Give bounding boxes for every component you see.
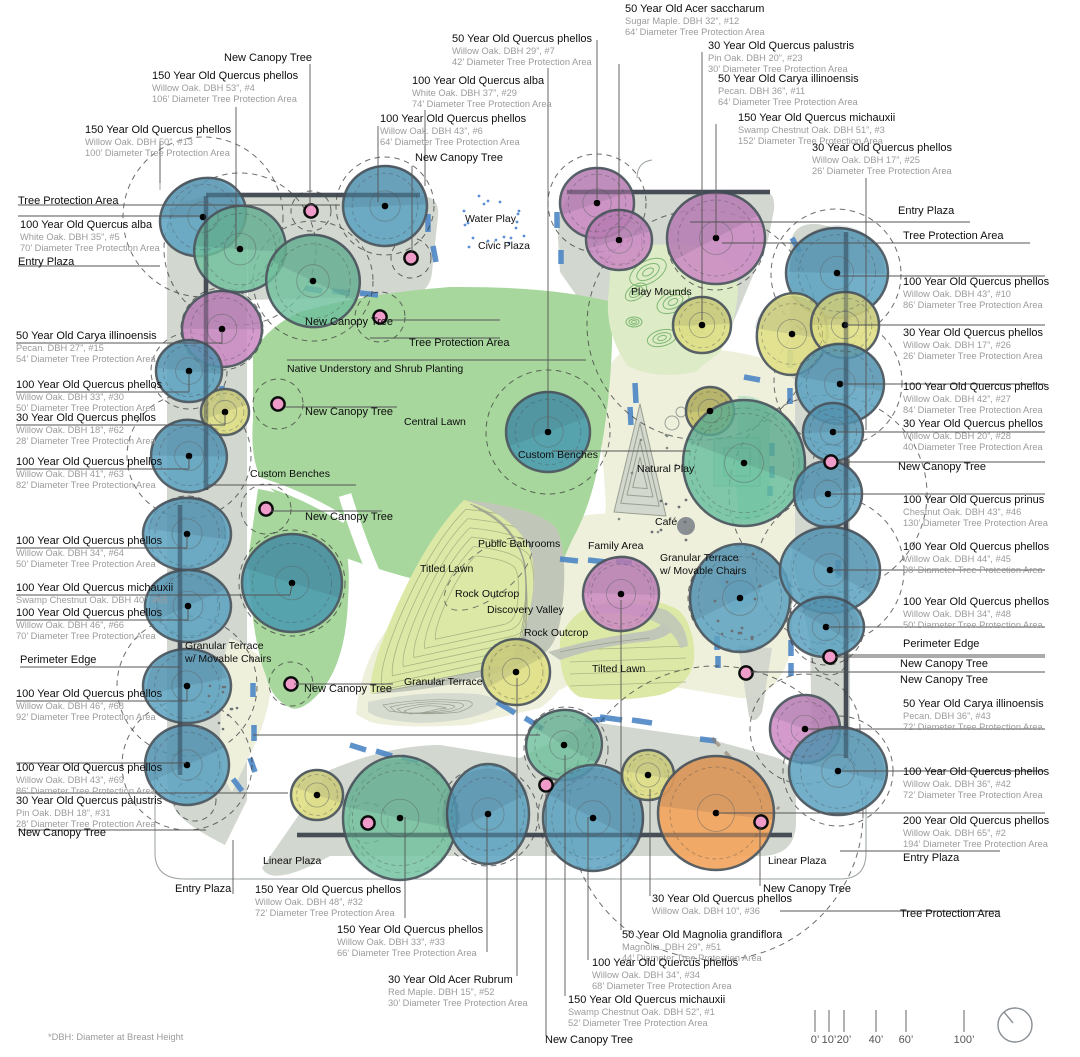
svg-text:w/ Movable Chairs: w/ Movable Chairs	[659, 565, 746, 577]
svg-text:40’ Diameter Tree Protection A: 40’ Diameter Tree Protection Area	[903, 442, 1044, 452]
svg-text:100 Year Old Quercus phellos: 100 Year Old Quercus phellos	[16, 379, 163, 391]
svg-text:Willow Oak. DBH 29”, #7: Willow Oak. DBH 29”, #7	[452, 46, 555, 56]
svg-text:150 Year Old Quercus phellos: 150 Year Old Quercus phellos	[152, 70, 299, 82]
svg-text:Water Play: Water Play	[465, 213, 517, 225]
svg-text:Willow Oak. DBH 53”, #4: Willow Oak. DBH 53”, #4	[152, 83, 255, 93]
svg-text:50 Year Old Carya illinoensis: 50 Year Old Carya illinoensis	[16, 330, 157, 342]
svg-text:70’ Diameter Tree Protection A: 70’ Diameter Tree Protection Area	[20, 243, 161, 253]
svg-text:50 Year Old Quercus phellos: 50 Year Old Quercus phellos	[452, 33, 593, 45]
svg-text:Family Area: Family Area	[588, 540, 644, 552]
svg-text:30’ Diameter Tree Protection A: 30’ Diameter Tree Protection Area	[388, 998, 529, 1008]
svg-text:New Canopy Tree: New Canopy Tree	[415, 152, 503, 164]
svg-text:Willow Oak. DBH 17”, #25: Willow Oak. DBH 17”, #25	[812, 155, 920, 165]
svg-text:64’ Diameter Tree Protection A: 64’ Diameter Tree Protection Area	[718, 97, 859, 107]
svg-text:72’ Diameter Tree Protection A: 72’ Diameter Tree Protection Area	[903, 722, 1044, 732]
svg-text:Willow Oak. DBH 44”, #45: Willow Oak. DBH 44”, #45	[903, 554, 1011, 564]
svg-text:100 Year Old Quercus phellos: 100 Year Old Quercus phellos	[16, 607, 163, 619]
svg-text:New Canopy Tree: New Canopy Tree	[18, 827, 106, 839]
svg-text:Tree Protection Area: Tree Protection Area	[903, 230, 1004, 242]
svg-text:100’ Diameter Tree Protection: 100’ Diameter Tree Protection Area	[85, 148, 231, 158]
svg-text:Willow Oak. DBH 10”, #36: Willow Oak. DBH 10”, #36	[652, 906, 760, 916]
svg-text:Custom Benches: Custom Benches	[518, 449, 598, 461]
svg-text:Tree Protection Area: Tree Protection Area	[409, 337, 510, 349]
svg-text:Entry Plaza: Entry Plaza	[898, 205, 955, 217]
svg-text:Granular Terrace: Granular Terrace	[404, 676, 483, 688]
svg-text:Willow Oak. DBH 50”, #13: Willow Oak. DBH 50”, #13	[85, 137, 193, 147]
svg-text:Pecan. DBH 27”, #15: Pecan. DBH 27”, #15	[16, 343, 104, 353]
svg-text:Willow Oak. DBH 18”, #62: Willow Oak. DBH 18”, #62	[16, 425, 124, 435]
svg-text:194’ Diameter Tree Protection: 194’ Diameter Tree Protection Area	[903, 839, 1049, 849]
svg-text:10’: 10’	[822, 1034, 837, 1046]
svg-text:Swamp Chestnut Oak. DBH 52”, #: Swamp Chestnut Oak. DBH 52”, #1	[568, 1007, 715, 1017]
svg-text:Discovery Valley: Discovery Valley	[487, 604, 565, 616]
svg-text:30 Year Old Quercus phellos: 30 Year Old Quercus phellos	[652, 893, 793, 905]
svg-text:New Canopy Tree: New Canopy Tree	[305, 406, 393, 418]
svg-text:Willow Oak. DBH 46”, #66: Willow Oak. DBH 46”, #66	[16, 620, 124, 630]
svg-text:Willow Oak. DBH 34”, #34: Willow Oak. DBH 34”, #34	[592, 970, 700, 980]
svg-text:40’: 40’	[869, 1034, 884, 1046]
svg-text:50 Year Old Magnolia grandiflo: 50 Year Old Magnolia grandiflora	[622, 929, 783, 941]
svg-text:Swamp Chestnut Oak. DBH 40”, #: Swamp Chestnut Oak. DBH 40”, #65	[16, 595, 168, 605]
svg-text:64’ Diameter Tree Protection A: 64’ Diameter Tree Protection Area	[380, 137, 521, 147]
svg-text:54’ Diameter Tree Protection A: 54’ Diameter Tree Protection Area	[16, 354, 157, 364]
svg-text:Play Mounds: Play Mounds	[631, 286, 692, 298]
svg-text:30 Year Old Quercus phellos: 30 Year Old Quercus phellos	[16, 412, 157, 424]
svg-text:52’ Diameter Tree Protection A: 52’ Diameter Tree Protection Area	[568, 1018, 709, 1028]
svg-text:100 Year Old Quercus alba: 100 Year Old Quercus alba	[20, 219, 153, 231]
svg-text:100 Year Old Quercus phellos: 100 Year Old Quercus phellos	[16, 688, 163, 700]
svg-text:100 Year Old Quercus prinus: 100 Year Old Quercus prinus	[903, 494, 1045, 506]
svg-text:Willow Oak. DBH 43”, #6: Willow Oak. DBH 43”, #6	[380, 126, 483, 136]
svg-text:Pecan. DBH 36”, #11: Pecan. DBH 36”, #11	[718, 86, 805, 96]
svg-text:42’ Diameter Tree Protection A: 42’ Diameter Tree Protection Area	[452, 57, 593, 67]
svg-text:Central Lawn: Central Lawn	[404, 416, 466, 428]
svg-text:Willow Oak. DBH 20”, #28: Willow Oak. DBH 20”, #28	[903, 431, 1011, 441]
svg-text:w/ Movable Chairs: w/ Movable Chairs	[184, 653, 271, 665]
svg-text:30 Year Old Acer Rubrum: 30 Year Old Acer Rubrum	[388, 974, 513, 986]
svg-text:Willow Oak. DBH 42”, #27: Willow Oak. DBH 42”, #27	[903, 394, 1011, 404]
svg-text:70’ Diameter Tree Protection A: 70’ Diameter Tree Protection Area	[16, 631, 157, 641]
svg-text:Public Bathrooms: Public Bathrooms	[478, 538, 560, 550]
svg-text:Willow Oak. DBH 34”, #64: Willow Oak. DBH 34”, #64	[16, 548, 124, 558]
svg-text:30 Year Old Quercus phellos: 30 Year Old Quercus phellos	[903, 327, 1044, 339]
svg-text:64’ Diameter Tree Protection A: 64’ Diameter Tree Protection Area	[625, 27, 766, 37]
svg-text:100 Year Old Quercus phellos: 100 Year Old Quercus phellos	[16, 535, 163, 547]
svg-text:50 Year Old Carya illinoensis: 50 Year Old Carya illinoensis	[903, 698, 1044, 710]
svg-text:New Canopy Tree: New Canopy Tree	[224, 52, 312, 64]
svg-text:Chestnut Oak. DBH 43”, #46: Chestnut Oak. DBH 43”, #46	[903, 507, 1021, 517]
svg-text:Perimeter Edge: Perimeter Edge	[903, 638, 979, 650]
svg-text:Magnolia. DBH 29”, #51: Magnolia. DBH 29”, #51	[622, 942, 721, 952]
svg-text:White Oak. DBH 35”, #5: White Oak. DBH 35”, #5	[20, 232, 120, 242]
svg-text:Civic Plaza: Civic Plaza	[478, 240, 530, 252]
svg-text:Entry Plaza: Entry Plaza	[18, 256, 75, 268]
svg-text:Willow Oak. DBH 33”, #33: Willow Oak. DBH 33”, #33	[337, 937, 445, 947]
svg-text:Titled Lawn: Titled Lawn	[420, 563, 473, 575]
svg-text:New Canopy Tree: New Canopy Tree	[304, 683, 392, 695]
svg-text:50 Year Old Carya illinoensis: 50 Year Old Carya illinoensis	[718, 73, 859, 85]
svg-text:30 Year Old Quercus palustris: 30 Year Old Quercus palustris	[708, 40, 855, 52]
svg-text:100 Year Old Quercus phellos: 100 Year Old Quercus phellos	[903, 381, 1050, 393]
svg-text:New Canopy Tree: New Canopy Tree	[305, 316, 393, 328]
svg-text:Willow Oak. DBH 17”, #26: Willow Oak. DBH 17”, #26	[903, 340, 1011, 350]
svg-text:Willow Oak. DBH 43”, #69: Willow Oak. DBH 43”, #69	[16, 775, 124, 785]
svg-text:New Canopy Tree: New Canopy Tree	[898, 461, 986, 473]
svg-text:White Oak. DBH 37”, #29: White Oak. DBH 37”, #29	[412, 88, 517, 98]
svg-text:Granular Terrace: Granular Terrace	[185, 640, 264, 652]
svg-text:100 Year Old Quercus phellos: 100 Year Old Quercus phellos	[903, 276, 1050, 288]
svg-text:100 Year Old Quercus phellos: 100 Year Old Quercus phellos	[903, 541, 1050, 553]
svg-text:26’ Diameter Tree Protection A: 26’ Diameter Tree Protection Area	[903, 351, 1044, 361]
svg-text:Perimeter Edge: Perimeter Edge	[20, 654, 96, 666]
svg-text:Sugar Maple. DBH 32”, #12: Sugar Maple. DBH 32”, #12	[625, 16, 739, 26]
svg-text:82’ Diameter Tree Protection A: 82’ Diameter Tree Protection Area	[16, 480, 157, 490]
svg-text:150 Year Old Quercus michauxii: 150 Year Old Quercus michauxii	[738, 112, 895, 124]
svg-text:Willow Oak. DBH 46”, #68: Willow Oak. DBH 46”, #68	[16, 701, 124, 711]
svg-text:Red Maple. DBH 15”, #52: Red Maple. DBH 15”, #52	[388, 987, 494, 997]
svg-text:Linear Plaza: Linear Plaza	[768, 855, 827, 867]
svg-text:28’ Diameter Tree Protection A: 28’ Diameter Tree Protection Area	[16, 436, 157, 446]
svg-text:Café: Café	[655, 516, 677, 528]
svg-text:Natural Play: Natural Play	[637, 463, 695, 475]
svg-text:100 Year Old Quercus alba: 100 Year Old Quercus alba	[412, 75, 545, 87]
svg-text:30 Year Old Quercus palustris: 30 Year Old Quercus palustris	[16, 795, 163, 807]
svg-text:66’ Diameter Tree Protection A: 66’ Diameter Tree Protection Area	[337, 948, 478, 958]
svg-text:50 Year Old Acer saccharum: 50 Year Old Acer saccharum	[625, 3, 764, 15]
svg-text:100 Year Old Quercus phellos: 100 Year Old Quercus phellos	[16, 762, 163, 774]
svg-text:Willow Oak. DBH 34”, #48: Willow Oak. DBH 34”, #48	[903, 609, 1011, 619]
svg-text:Tree Protection Area: Tree Protection Area	[18, 195, 119, 207]
svg-text:Pin Oak. DBH 20”, #23: Pin Oak. DBH 20”, #23	[708, 53, 803, 63]
svg-text:98’ Diameter Tree Protection A: 98’ Diameter Tree Protection Area	[903, 565, 1044, 575]
svg-text:100 Year Old Quercus phellos: 100 Year Old Quercus phellos	[592, 957, 739, 969]
svg-text:*DBH: Diameter at Breast Heigh: *DBH: Diameter at Breast Height	[48, 1032, 184, 1042]
svg-text:Willow Oak. DBH 65”, #2: Willow Oak. DBH 65”, #2	[903, 828, 1006, 838]
svg-text:100 Year Old Quercus michauxii: 100 Year Old Quercus michauxii	[16, 582, 173, 594]
svg-text:60’: 60’	[899, 1034, 914, 1046]
svg-text:Tilted Lawn: Tilted Lawn	[592, 663, 645, 675]
svg-text:New Canopy Tree: New Canopy Tree	[900, 658, 988, 670]
svg-text:New Canopy Tree: New Canopy Tree	[305, 511, 393, 523]
svg-text:0’: 0’	[811, 1034, 820, 1046]
svg-text:New Canopy Tree: New Canopy Tree	[545, 1034, 633, 1046]
svg-text:New Canopy Tree: New Canopy Tree	[900, 674, 988, 686]
svg-text:100 Year Old Quercus phellos: 100 Year Old Quercus phellos	[903, 596, 1050, 608]
svg-text:150 Year Old Quercus phellos: 150 Year Old Quercus phellos	[255, 884, 402, 896]
svg-text:Tree Protection Area: Tree Protection Area	[900, 908, 1001, 920]
svg-text:100 Year Old Quercus phellos: 100 Year Old Quercus phellos	[903, 766, 1050, 778]
svg-text:Willow Oak. DBH 41”, #63: Willow Oak. DBH 41”, #63	[16, 469, 124, 479]
svg-text:Willow Oak. DBH 43”, #10: Willow Oak. DBH 43”, #10	[903, 289, 1011, 299]
svg-text:Granular Terrace: Granular Terrace	[660, 552, 739, 564]
svg-text:84’ Diameter Tree Protection A: 84’ Diameter Tree Protection Area	[903, 405, 1044, 415]
svg-text:74’ Diameter Tree Protection A: 74’ Diameter Tree Protection Area	[412, 99, 553, 109]
svg-text:Willow Oak. DBH 36”, #42: Willow Oak. DBH 36”, #42	[903, 779, 1011, 789]
svg-text:20’: 20’	[837, 1034, 852, 1046]
svg-text:200 Year Old Quercus phellos: 200 Year Old Quercus phellos	[903, 815, 1050, 827]
svg-text:68’ Diameter Tree Protection A: 68’ Diameter Tree Protection Area	[592, 981, 733, 991]
svg-text:Linear Plaza: Linear Plaza	[263, 855, 322, 867]
svg-text:150 Year Old Quercus michauxii: 150 Year Old Quercus michauxii	[568, 994, 725, 1006]
svg-text:106’ Diameter Tree Protection: 106’ Diameter Tree Protection Area	[152, 94, 298, 104]
svg-text:30 Year Old Quercus phellos: 30 Year Old Quercus phellos	[903, 418, 1044, 430]
svg-text:72’ Diameter Tree Protection A: 72’ Diameter Tree Protection Area	[255, 908, 396, 918]
svg-text:50’ Diameter Tree Protection A: 50’ Diameter Tree Protection Area	[16, 559, 157, 569]
svg-text:Custom Benches: Custom Benches	[250, 468, 330, 480]
svg-text:Willow Oak. DBH 48”, #32: Willow Oak. DBH 48”, #32	[255, 897, 363, 907]
svg-text:Native Understory and Shrub Pl: Native Understory and Shrub Planting	[287, 363, 463, 375]
svg-text:Swamp Chestnut Oak. DBH 51”, #: Swamp Chestnut Oak. DBH 51”, #3	[738, 125, 885, 135]
svg-text:Rock Outcrop: Rock Outcrop	[524, 627, 588, 639]
svg-text:Pecan. DBH 36”, #43: Pecan. DBH 36”, #43	[903, 711, 991, 721]
svg-text:Pin Oak. DBH 18”, #31: Pin Oak. DBH 18”, #31	[16, 808, 111, 818]
svg-text:130’ Diameter Tree Protection: 130’ Diameter Tree Protection Area	[903, 518, 1049, 528]
svg-text:30 Year Old Quercus phellos: 30 Year Old Quercus phellos	[812, 142, 953, 154]
svg-text:100 Year Old Quercus phellos: 100 Year Old Quercus phellos	[16, 456, 163, 468]
svg-text:50’ Diameter Tree Protection A: 50’ Diameter Tree Protection Area	[903, 620, 1044, 630]
svg-text:Entry Plaza: Entry Plaza	[903, 852, 960, 864]
svg-text:Rock Outcrop: Rock Outcrop	[455, 588, 519, 600]
svg-text:86’ Diameter Tree Protection A: 86’ Diameter Tree Protection Area	[903, 300, 1044, 310]
svg-text:26’ Diameter Tree Protection A: 26’ Diameter Tree Protection Area	[812, 166, 953, 176]
svg-text:100 Year Old Quercus phellos: 100 Year Old Quercus phellos	[380, 113, 527, 125]
svg-text:Willow Oak. DBH 33”, #30: Willow Oak. DBH 33”, #30	[16, 392, 124, 402]
svg-text:150 Year Old Quercus phellos: 150 Year Old Quercus phellos	[85, 124, 232, 136]
svg-text:72’ Diameter Tree Protection A: 72’ Diameter Tree Protection Area	[903, 790, 1044, 800]
svg-text:100’: 100’	[954, 1034, 975, 1046]
svg-text:150 Year Old Quercus phellos: 150 Year Old Quercus phellos	[337, 924, 484, 936]
svg-text:Entry Plaza: Entry Plaza	[175, 883, 232, 895]
svg-text:92’ Diameter Tree Protection A: 92’ Diameter Tree Protection Area	[16, 712, 157, 722]
